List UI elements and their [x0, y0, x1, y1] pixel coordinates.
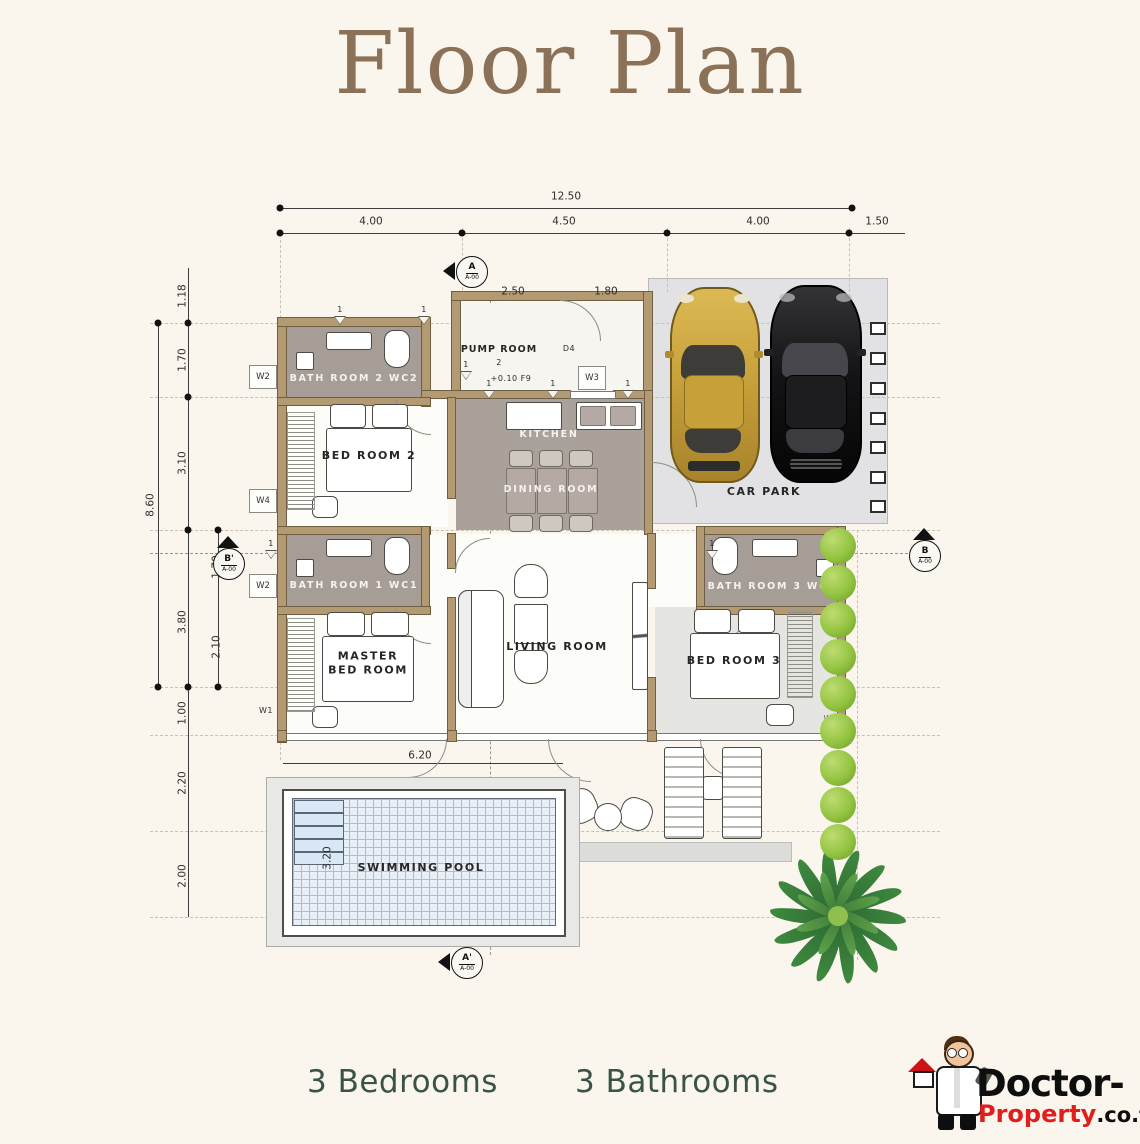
nightstand	[312, 706, 338, 728]
dining-chair	[509, 450, 533, 467]
dim-line	[158, 323, 159, 687]
plan-label: 3.10	[176, 451, 189, 474]
plan-label: CAR PARK	[727, 485, 801, 499]
section-marker-label: A'	[459, 954, 475, 965]
stove	[506, 402, 562, 430]
summary-bedrooms: 3 Bedrooms	[307, 1064, 498, 1100]
plan-label: 3.80	[176, 610, 189, 633]
fence-post	[870, 500, 886, 513]
plan-label: W1	[259, 706, 273, 716]
section-marker-arrow	[438, 953, 450, 971]
palm-center	[828, 906, 848, 926]
plan-label: MASTER BED ROOM	[328, 649, 408, 677]
wall-segment	[645, 391, 652, 534]
bush	[820, 528, 856, 564]
bush	[820, 750, 856, 786]
pool-step	[294, 852, 344, 865]
grid-flag-number: 1	[625, 379, 631, 389]
car-roof	[684, 375, 744, 429]
plan-label: 4.50	[552, 215, 575, 228]
wall-segment	[697, 527, 845, 534]
grid-flag-number: 1	[486, 379, 492, 389]
doctor-property-logo: Doctor- Property.co.th	[898, 1024, 1140, 1144]
plan-label: BATH ROOM 1 WC1	[290, 580, 419, 592]
terrace-step	[560, 842, 792, 862]
shower-drain	[296, 352, 314, 370]
dim-line	[280, 233, 905, 234]
headlight	[678, 294, 694, 303]
mascot-boot	[938, 1114, 954, 1130]
sun-lounger	[664, 747, 704, 839]
dim-dot	[215, 684, 222, 691]
pillow	[327, 612, 365, 636]
section-marker: BA-00	[909, 540, 941, 572]
bed-bedroom2	[326, 402, 410, 490]
plan-label: 1.70	[176, 348, 189, 371]
armchair	[514, 650, 548, 684]
nightstand	[312, 496, 338, 518]
rear-grille	[790, 459, 842, 469]
dim-dot	[846, 230, 853, 237]
pillow	[372, 404, 408, 428]
dim-dot	[185, 527, 192, 534]
rear-window	[685, 429, 741, 453]
dim-dot	[155, 320, 162, 327]
grid-flag-number: 1	[550, 379, 556, 389]
floor-plan-drawing: 12.504.004.504.001.502.501.801.181.703.1…	[0, 0, 1140, 1010]
plan-label: 1.80	[594, 285, 617, 298]
bush	[820, 602, 856, 638]
dim-dot	[185, 684, 192, 691]
dining-chair	[539, 450, 563, 467]
mirror	[764, 349, 773, 356]
dining-chair	[569, 450, 593, 467]
car-roof	[785, 375, 847, 429]
fence-post	[870, 471, 886, 484]
wall-segment	[278, 318, 430, 326]
pool-step	[294, 800, 344, 813]
dim-dot	[849, 205, 856, 212]
wall-segment	[422, 527, 429, 614]
sink-basin	[580, 406, 606, 426]
windshield	[782, 343, 848, 377]
dining-chair	[539, 515, 563, 532]
pillow	[694, 609, 731, 633]
window-tag: W3	[578, 366, 606, 390]
grid-line	[849, 228, 850, 292]
wall-segment	[644, 292, 652, 398]
brand-name: Doctor-	[976, 1062, 1124, 1105]
sofa-back	[458, 590, 472, 708]
sink	[326, 539, 372, 557]
grid-flag-fill	[266, 551, 276, 558]
bush	[820, 676, 856, 712]
bed-bedroom3	[690, 607, 778, 697]
fence-post	[870, 352, 886, 365]
dim-line	[280, 208, 852, 209]
black-car	[770, 285, 862, 483]
section-marker-arrow	[217, 536, 239, 548]
fence-post	[870, 322, 886, 335]
plan-label: PUMP ROOM	[461, 344, 537, 356]
house-roof-icon	[908, 1058, 936, 1072]
plan-label: 2.50	[501, 285, 524, 298]
plan-label: 4.00	[746, 215, 769, 228]
mascot-glasses	[958, 1048, 968, 1058]
shower-drain	[296, 559, 314, 577]
bush	[820, 639, 856, 675]
rear-grille	[688, 461, 740, 471]
toilet	[384, 537, 410, 575]
wall-segment	[448, 598, 455, 740]
plan-label: 4.00	[359, 215, 382, 228]
plan-label: KITCHEN	[519, 429, 578, 441]
plan-label: 1.00	[176, 701, 189, 724]
section-marker: B'A-00	[213, 548, 245, 580]
grid-line	[667, 228, 668, 292]
wall-segment	[278, 527, 430, 534]
grid-flag-number: 1	[268, 539, 274, 549]
plan-label: 1.50	[865, 215, 888, 228]
plan-label: 2.20	[176, 771, 189, 794]
brand-property: Property	[978, 1100, 1096, 1128]
plan-label: BED ROOM 2	[322, 449, 416, 463]
summary-bathrooms: 3 Bathrooms	[575, 1064, 779, 1100]
windshield	[681, 345, 745, 379]
mirror	[754, 351, 763, 358]
bush	[820, 824, 856, 860]
headlight	[734, 294, 750, 303]
sink-basin	[610, 406, 636, 426]
dim-dot	[459, 230, 466, 237]
fence-post	[870, 412, 886, 425]
sun-lounger	[722, 747, 762, 839]
dim-dot	[664, 230, 671, 237]
headlight	[779, 293, 795, 302]
patio-table	[594, 803, 622, 831]
grid-flag-number: 1	[337, 305, 343, 315]
grid-flag-number: 1	[421, 305, 427, 315]
grid-flag-number: 1	[709, 539, 715, 549]
headlight	[836, 293, 852, 302]
section-marker-arrow	[913, 528, 935, 540]
section-marker: AA-00	[456, 256, 488, 288]
plan-label: DINING ROOM	[504, 484, 599, 496]
wardrobe	[787, 610, 813, 698]
section-marker-sheet: A-00	[222, 566, 236, 573]
section-marker-label: B	[919, 547, 932, 558]
window-tag: W2	[249, 365, 277, 389]
dining-chair	[569, 515, 593, 532]
wall-segment	[448, 398, 455, 498]
dim-dot	[277, 230, 284, 237]
plan-label: 3.20	[321, 846, 334, 869]
plan-label: 8.60	[144, 493, 157, 516]
wall-segment	[422, 391, 570, 398]
toilet	[384, 330, 410, 368]
house-icon	[913, 1071, 934, 1088]
wall-segment	[448, 534, 455, 568]
plan-label: SWIMMING POOL	[358, 861, 485, 875]
sink	[326, 332, 372, 350]
wall-segment	[697, 527, 704, 614]
brand-name-line2: Property.co.th	[978, 1100, 1140, 1128]
plan-label: +0.10 F9	[491, 374, 532, 384]
plan-label: D4	[563, 344, 575, 354]
wardrobe	[287, 618, 315, 712]
window-tag: W2	[249, 574, 277, 598]
rear-window	[786, 429, 844, 453]
section-marker-arrow	[443, 262, 455, 280]
dim-dot	[215, 527, 222, 534]
plan-label: BED ROOM 3	[687, 654, 781, 668]
floor-plan-page: { "title": "Floor Plan", "summary": { "b…	[0, 0, 1140, 1144]
palm-tree	[770, 848, 906, 984]
plan-label: BATH ROOM 3 WC3	[708, 581, 837, 593]
dim-dot	[277, 205, 284, 212]
door-arc	[548, 739, 591, 782]
grid-flag-number: 1	[463, 360, 469, 370]
wall-post	[278, 731, 286, 741]
section-marker: A'A-00	[451, 947, 483, 979]
plan-label: 6.20	[408, 749, 431, 762]
wall-segment	[648, 534, 655, 588]
section-marker-sheet: A-00	[465, 274, 479, 281]
bush	[820, 787, 856, 823]
dim-dot	[155, 684, 162, 691]
section-marker-label: A	[466, 263, 479, 274]
nightstand	[766, 704, 794, 726]
mascot-boot	[960, 1114, 976, 1130]
wall-post	[648, 731, 656, 741]
pool-step	[294, 826, 344, 839]
toilet	[712, 537, 738, 575]
window-tag: W4	[249, 489, 277, 513]
dining-chair	[509, 515, 533, 532]
mascot-glasses	[947, 1048, 957, 1058]
plan-label: 2.00	[176, 864, 189, 887]
window-w3	[570, 391, 616, 399]
plan-label: 1.18	[176, 284, 189, 307]
gold-car	[670, 287, 760, 483]
coffee-table	[514, 604, 548, 644]
tv-cabinet	[632, 582, 648, 690]
sink	[752, 539, 798, 557]
section-marker-sheet: A-00	[460, 965, 474, 972]
dim-dot	[185, 320, 192, 327]
mirror	[857, 349, 866, 356]
plan-label: LIVING ROOM	[506, 640, 608, 654]
fence-post	[870, 441, 886, 454]
pool-step	[294, 813, 344, 826]
bush	[820, 565, 856, 601]
wall-segment	[452, 292, 460, 398]
pillow	[371, 612, 409, 636]
wardrobe	[287, 412, 315, 510]
bush	[820, 713, 856, 749]
section-marker-sheet: A-00	[918, 558, 932, 565]
wall-segment	[452, 292, 652, 300]
fence-post	[870, 382, 886, 395]
pool-step	[294, 839, 344, 852]
coat-opening	[954, 1068, 960, 1108]
plan-label: 2.10	[210, 635, 223, 658]
brand-tld: .co.th	[1096, 1103, 1140, 1127]
pillow	[330, 404, 366, 428]
plan-label: BATH ROOM 2 WC2	[290, 373, 419, 385]
plan-label: 12.50	[551, 190, 581, 203]
armchair	[514, 564, 548, 598]
pillow	[738, 609, 775, 633]
wall-post	[448, 731, 456, 741]
mirror	[665, 351, 674, 358]
section-marker-label: B'	[221, 555, 237, 566]
side-table	[703, 776, 723, 800]
dim-dot	[185, 394, 192, 401]
plan-label: 2	[496, 358, 502, 368]
